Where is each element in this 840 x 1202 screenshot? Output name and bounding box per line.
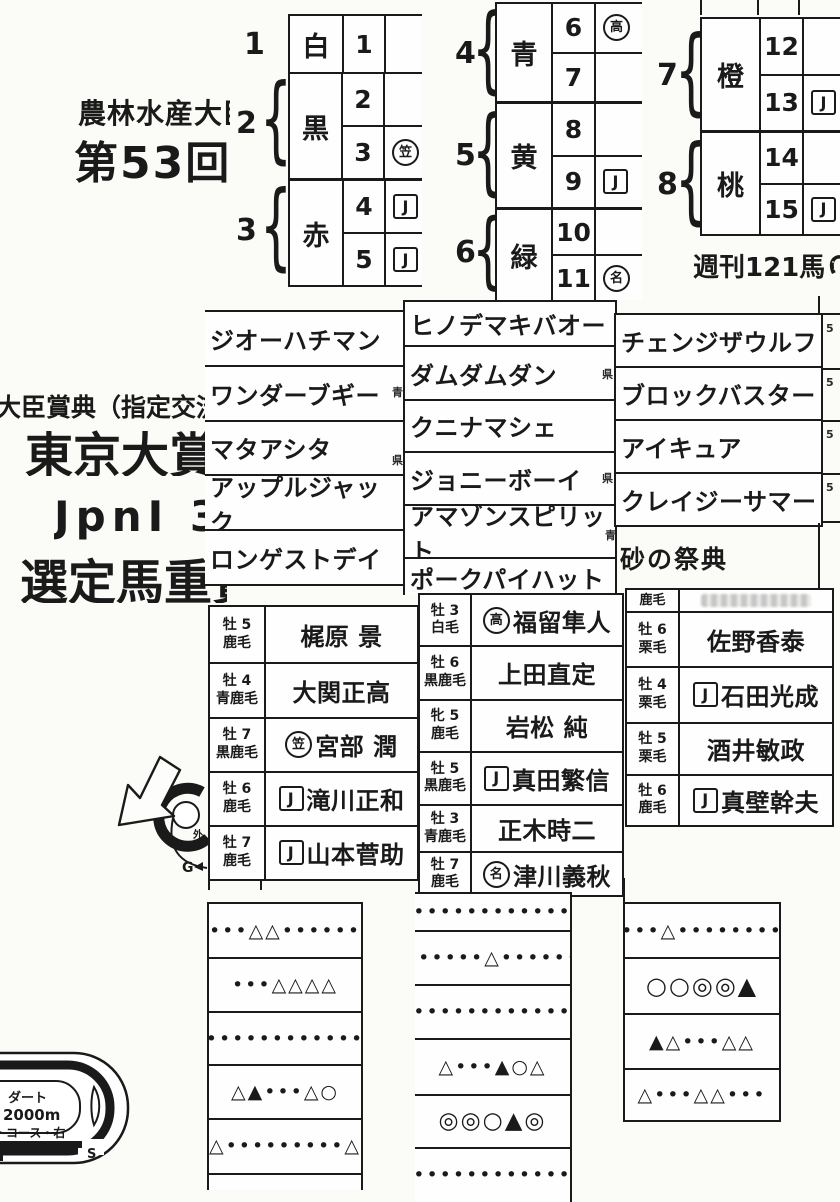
horse-number: 5 bbox=[344, 234, 386, 285]
trainer-name: J真田繁信 bbox=[472, 753, 622, 804]
waku-color-label: 橙 bbox=[702, 19, 761, 130]
sex-age-coat: 牡 5栗毛 bbox=[627, 724, 680, 774]
sex-age-coat: 鹿毛 bbox=[627, 590, 680, 611]
horse-number: 2 bbox=[343, 74, 385, 125]
strip-edge-fragment: 県 bbox=[602, 366, 613, 382]
affiliation-circle-mark: 笠 bbox=[392, 139, 419, 166]
entry-table-right: 鹿毛 牡 6栗毛 佐野香泰 牡 4栗毛 J石田光成 牡 5栗毛 酒井敏政 牡 6… bbox=[625, 588, 834, 827]
horse-name: ポークパイハット bbox=[405, 557, 615, 595]
edge-text-fragment: 5 bbox=[826, 322, 834, 335]
affiliation-circle-mark: 笠 bbox=[285, 731, 312, 758]
horse-name: ジオーハチマン bbox=[205, 312, 403, 365]
prediction-marks-row: △•••▲○△ bbox=[415, 1038, 570, 1093]
course-surface: ダート bbox=[8, 1090, 47, 1106]
affiliation-circle-mark: 名 bbox=[603, 265, 630, 292]
sex-age-coat: 牡 7鹿毛 bbox=[210, 827, 266, 879]
sex-age-coat: 牝 5鹿毛 bbox=[420, 701, 472, 751]
sex-age-coat: 牡 6鹿毛 bbox=[627, 776, 680, 825]
waku-group-green: 緑 10 11 名 bbox=[495, 208, 642, 300]
strip-edge-fragment: 県 bbox=[392, 452, 403, 468]
prediction-marks-row-cut bbox=[209, 1173, 361, 1190]
page-edge-rule bbox=[818, 296, 820, 313]
waku-color-label: 白 bbox=[290, 16, 344, 72]
prediction-marks-row: •••••••••••••• bbox=[415, 1147, 570, 1202]
prediction-marks-row: ○○◎◎▲ bbox=[625, 957, 779, 1012]
cut-row-border bbox=[700, 0, 702, 15]
horse-name: アイキュア bbox=[616, 419, 821, 472]
trainer-name: 正木時二 bbox=[472, 806, 622, 851]
trainer-name: 佐野香泰 bbox=[680, 613, 832, 666]
horse-name-strip-3: チェンジザウルフ ブロックバスター アイキュア クレイジーサマー bbox=[614, 313, 823, 527]
horse-name: ヒノデマキバオー bbox=[405, 302, 615, 345]
horse-name: マタアシタ bbox=[205, 420, 403, 475]
horse-name-strip-2: ヒノデマキバオー ダムダムダン クニナマシェ ジョニーボーイ アマゾンスピリット… bbox=[403, 300, 617, 595]
waku-color-label: 赤 bbox=[290, 181, 344, 285]
course-layout: トコース・右 bbox=[0, 1125, 65, 1140]
horseshoe-icon bbox=[827, 253, 840, 277]
sex-age-coat: 牡 7鹿毛 bbox=[420, 853, 472, 895]
grade-line: JpnⅠ 3 bbox=[54, 492, 225, 541]
horse-name: ダムダムダン bbox=[405, 345, 615, 398]
horse-name-strip-1: ジオーハチマン ワンダーブギー マタアシタ アップルジャック ロンゲストデイ bbox=[205, 310, 403, 586]
horse-name: ロンゲストデイ bbox=[205, 529, 403, 584]
trainer-name: 梶原 景 bbox=[266, 607, 417, 662]
sex-age-coat: 牡 5鹿毛 bbox=[210, 607, 266, 662]
horse-number: 7 bbox=[553, 54, 596, 102]
trainer-name: 上田直定 bbox=[472, 647, 622, 698]
marks-table-middle: •••••••••••••• ••••••△•••••• •••••••••••… bbox=[415, 892, 572, 1202]
jra-box-mark: J bbox=[693, 788, 718, 813]
jra-box-mark: J bbox=[811, 197, 836, 222]
affiliation-circle-mark: 高 bbox=[603, 14, 630, 41]
horse-number: 4 bbox=[344, 181, 386, 232]
prediction-marks-row: ••••••△•••••• bbox=[415, 930, 570, 984]
prediction-marks-row: •••△•••••••• bbox=[625, 904, 779, 957]
prediction-marks-row: △•••••••••△ bbox=[209, 1118, 361, 1172]
affiliation-circle-mark: 名 bbox=[483, 861, 510, 888]
jra-box-mark: J bbox=[279, 840, 304, 865]
waku-number-1: 1 bbox=[244, 27, 265, 62]
horse-name: クレイジーサマー bbox=[616, 472, 821, 525]
horse-name: ブロックバスター bbox=[616, 366, 821, 419]
waku-group-pink: 桃 14 15 J bbox=[700, 131, 840, 236]
horse-number: 11 bbox=[553, 256, 596, 300]
prediction-marks-row: •••••••••••••• bbox=[415, 894, 570, 930]
waku-color-label: 青 bbox=[497, 4, 553, 101]
jra-box-mark: J bbox=[484, 766, 509, 791]
cut-row-border bbox=[798, 0, 800, 15]
horse-number: 3 bbox=[343, 127, 385, 178]
waku-group-orange: 橙 12 13 J bbox=[700, 17, 840, 132]
affiliation-circle-mark: 高 bbox=[483, 607, 510, 634]
horse-number: 13 bbox=[761, 76, 804, 131]
edge-text-fragment: 5 bbox=[826, 428, 834, 441]
trainer-name: 笠宮部 潤 bbox=[266, 719, 417, 771]
horse-number: 9 bbox=[553, 157, 596, 208]
course-distance: 2000m bbox=[3, 1106, 60, 1124]
trainer-name: J滝川正和 bbox=[266, 773, 417, 824]
horse-number: 14 bbox=[761, 133, 804, 183]
waku-color-label: 黄 bbox=[497, 104, 553, 207]
jra-box-mark: J bbox=[603, 169, 628, 194]
trainer-name-illegible bbox=[680, 590, 832, 611]
trainer-name: J真壁幹夫 bbox=[680, 776, 832, 825]
course-map: ダート 2000m トコース・右 S bbox=[0, 1045, 135, 1180]
strip-edge-fragment: 青 bbox=[605, 527, 616, 543]
edge-row-stub bbox=[821, 521, 840, 523]
sex-age-coat: 牡 6鹿毛 bbox=[210, 773, 266, 824]
waku-group-blue: 青 6 高 7 bbox=[495, 2, 642, 103]
prediction-marks-row: △•••△△••• bbox=[625, 1068, 779, 1120]
marks-table-left: •••△△•••••• •••△△△△ •••••••••••••• △▲•••… bbox=[207, 902, 363, 1190]
waku-color-label: 桃 bbox=[702, 133, 761, 234]
strip-edge-fragment: 県 bbox=[602, 470, 613, 486]
prediction-marks-row: ▲△•••△△ bbox=[625, 1013, 779, 1068]
horse-name: ワンダーブギー bbox=[205, 365, 403, 420]
sex-age-coat: 牡 4青鹿毛 bbox=[210, 664, 266, 716]
waku-number-2: 2 bbox=[236, 106, 257, 141]
ministry-heading: 農林水産大臣 bbox=[78, 92, 230, 128]
sex-age-coat: 牡 6栗毛 bbox=[627, 613, 680, 666]
waku-color-label: 黒 bbox=[290, 74, 343, 178]
prediction-marks-row: •••••••••••••• bbox=[415, 984, 570, 1038]
jra-box-mark: J bbox=[693, 682, 718, 707]
catchphrase: 砂の祭典 bbox=[620, 540, 728, 576]
horse-number: 12 bbox=[761, 19, 804, 74]
waku-group-yellow: 黄 8 9 J bbox=[495, 102, 642, 209]
edge-row-stub bbox=[821, 420, 840, 422]
waku-group-red: 赤 4 J 5 J bbox=[288, 179, 422, 287]
horse-name: クニナマシェ bbox=[405, 399, 615, 451]
waku-group-white: 白 1 bbox=[288, 14, 422, 74]
magazine-label: 週刊121馬 bbox=[693, 247, 825, 284]
outer-note: 外 bbox=[192, 828, 203, 841]
horse-number: 1 bbox=[344, 16, 386, 72]
sex-age-coat: 牡 6黒鹿毛 bbox=[420, 647, 472, 698]
edge-row-stub bbox=[821, 368, 840, 370]
waku-group-black: 黒 2 3 笠 bbox=[288, 72, 422, 180]
entry-table-middle: 牡 3白毛 高福留隼人 牡 6黒鹿毛 上田直定 牝 5鹿毛 岩松 純 牡 5黒鹿… bbox=[418, 593, 624, 897]
sex-age-coat: 牡 4栗毛 bbox=[627, 668, 680, 721]
prediction-marks-row: ◎◎○▲◎ bbox=[415, 1094, 570, 1147]
horse-number: 15 bbox=[761, 185, 804, 235]
horse-number: 6 bbox=[553, 4, 596, 52]
race-title: 東京大賞典 bbox=[0, 416, 232, 476]
horse-name: チェンジザウルフ bbox=[616, 315, 821, 366]
jra-box-mark: J bbox=[279, 786, 304, 811]
prediction-marks-row: •••△△△△ bbox=[209, 957, 361, 1011]
horse-name: ジョニーボーイ bbox=[405, 451, 615, 504]
marks-table-right: •••△•••••••• ○○◎◎▲ ▲△•••△△ △•••△△••• bbox=[623, 902, 781, 1122]
trainer-name: 名津川義秋 bbox=[472, 853, 622, 895]
illegible-name bbox=[701, 594, 811, 607]
magazine-name: 週刊121馬 bbox=[693, 245, 840, 285]
strip-edge-fragment: 青 bbox=[392, 384, 403, 400]
edge-row-stub bbox=[821, 473, 840, 475]
prediction-marks-row: •••△△•••••• bbox=[209, 904, 361, 957]
waku-color-label: 緑 bbox=[497, 210, 553, 300]
trainer-name: J山本菅助 bbox=[266, 827, 417, 879]
trainer-name: 大関正高 bbox=[266, 664, 417, 716]
prediction-marks-row: △▲•••△○ bbox=[209, 1064, 361, 1118]
sex-age-coat: 牡 3青鹿毛 bbox=[420, 806, 472, 851]
waku-number-3: 3 bbox=[236, 213, 257, 248]
horse-name: アマゾンスピリット bbox=[405, 504, 615, 557]
jra-box-mark: J bbox=[393, 194, 418, 219]
edge-text-fragment: 5 bbox=[826, 481, 834, 494]
sex-age-coat: 牡 5黒鹿毛 bbox=[420, 753, 472, 804]
horse-number: 10 bbox=[553, 210, 596, 254]
cut-row-border bbox=[757, 0, 759, 15]
jra-box-mark: J bbox=[811, 90, 836, 115]
trainer-name: 酒井敏政 bbox=[680, 724, 832, 774]
sex-age-coat: 牡 3白毛 bbox=[420, 595, 472, 645]
start-label: S bbox=[87, 1147, 96, 1162]
trainer-name: 高福留隼人 bbox=[472, 595, 622, 645]
sex-age-coat: 牡 7黒鹿毛 bbox=[210, 719, 266, 771]
goal-label: G bbox=[182, 860, 194, 876]
edge-text-fragment: 5 bbox=[826, 376, 834, 389]
course-direction-arrow: G 外 bbox=[52, 688, 212, 888]
trainer-name: J石田光成 bbox=[680, 668, 832, 721]
selection-line: 選定馬重賞 bbox=[0, 543, 227, 603]
round-heading: 第53回 bbox=[74, 127, 231, 191]
trainer-name: 岩松 純 bbox=[472, 701, 622, 751]
horse-name: アップルジャック bbox=[205, 474, 403, 529]
jra-box-mark: J bbox=[393, 247, 418, 272]
prediction-marks-row: •••••••••••••• bbox=[209, 1011, 361, 1064]
horse-number: 8 bbox=[553, 104, 596, 155]
entry-table-left: 牡 5鹿毛 梶原 景 牡 4青鹿毛 大関正高 牡 7黒鹿毛 笠宮部 潤 牡 6鹿… bbox=[208, 605, 419, 881]
edge-row-stub bbox=[821, 313, 840, 315]
